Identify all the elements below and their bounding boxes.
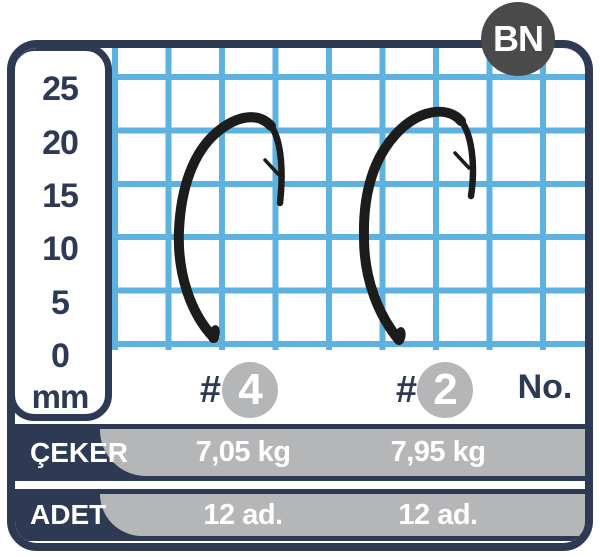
ruler-tick-15: 15 <box>15 178 105 214</box>
ruler-tick-25: 25 <box>15 71 105 107</box>
bn-coating-badge: BN <box>481 2 555 76</box>
ruler-tick-10: 10 <box>15 231 105 267</box>
ruler-unit-label: mm <box>15 379 105 415</box>
spec-value-adet-right: 12 ad. <box>353 489 523 541</box>
spec-value-ceker-left: 7,05 kg <box>158 424 328 481</box>
card-frame: 25 20 15 10 5 0 mm # 4 # 2 No. ÇEKER 7,0… <box>7 40 593 551</box>
spec-value-adet-left: 12 ad. <box>158 489 328 541</box>
product-card: 25 20 15 10 5 0 mm # 4 # 2 No. ÇEKER 7,0… <box>0 0 600 557</box>
spec-row-adet: ADET 12 ad. 12 ad. <box>8 489 585 541</box>
ruler-tick-5: 5 <box>15 285 105 321</box>
spec-row-label: ADET <box>30 489 106 541</box>
mm-ruler-panel: 25 20 15 10 5 0 mm <box>8 44 112 421</box>
ruler-tick-0: 0 <box>15 338 105 374</box>
ruler-tick-20: 20 <box>15 125 105 161</box>
spec-row-ceker: ÇEKER 7,05 kg 7,95 kg <box>8 424 585 481</box>
spec-value-ceker-right: 7,95 kg <box>353 424 523 481</box>
size-badge-4: 4 <box>222 362 278 418</box>
spec-row-label: ÇEKER <box>30 424 128 481</box>
size-badge-2: 2 <box>417 362 473 418</box>
number-unit-label: No. <box>505 369 585 405</box>
